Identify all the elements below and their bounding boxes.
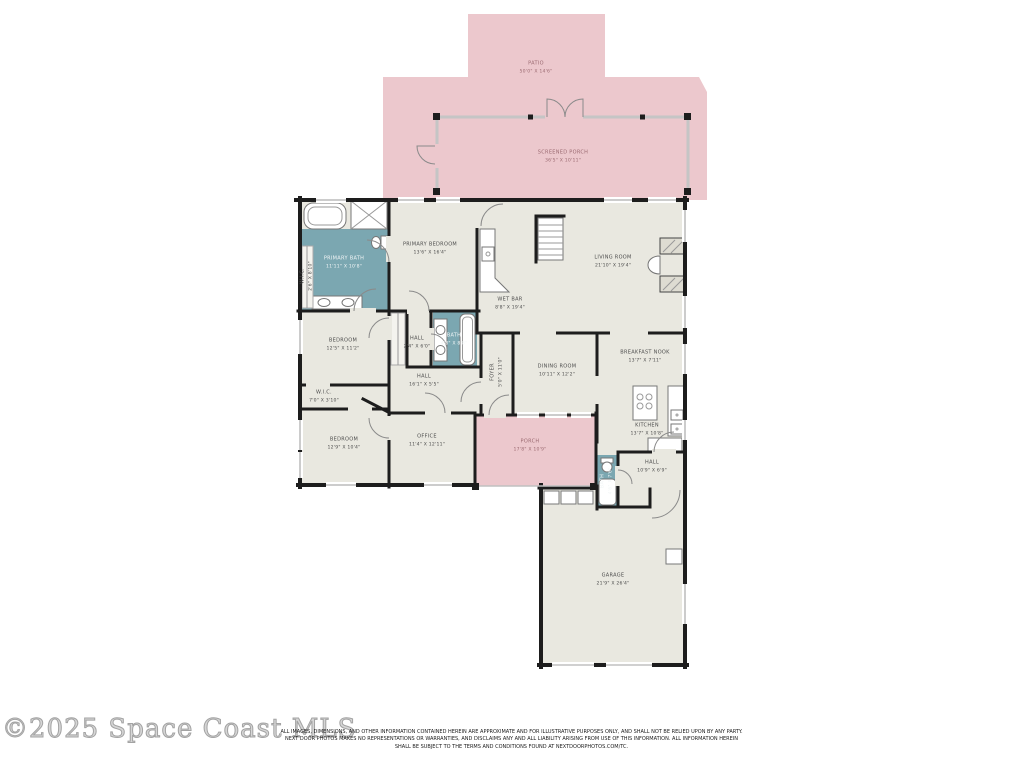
room-label-hall-main: HALL 16'1" X 5'5" [409, 374, 439, 389]
room-label-patio: PATIO 50'0" X 14'6" [520, 61, 553, 76]
room-label-garage: GARAGE 21'9" X 26'4" [597, 573, 630, 588]
room-name: BATH [441, 333, 468, 341]
room-name: FOYER [490, 357, 498, 387]
dishwasher [482, 247, 494, 261]
laundry-unit [561, 491, 576, 504]
floorplan-canvas: PATIO 50'0" X 14'6" SCREENED PORCH 36'5"… [0, 0, 1024, 768]
room-label-dining-room: DINING ROOM 10'11" X 12'2" [538, 364, 577, 379]
room-label-hall-small: HALL 2'4" X 6'0" [404, 336, 431, 351]
stairs [538, 218, 563, 260]
room-dims: 5'0" X 11'0" [497, 357, 504, 387]
room-dims: 8'8" X 19'4" [495, 304, 525, 311]
room-name: LIVING ROOM [594, 255, 631, 263]
room-dims: 2'6" X 8'10" [307, 261, 314, 291]
wall-oven [671, 410, 683, 420]
room-name: SCREENED PORCH [538, 150, 588, 158]
room-label-office: OFFICE 11'4" X 12'11" [409, 434, 445, 449]
room-name: PORCH [514, 439, 547, 447]
disclaimer-line-1: ALL IMAGES, DIMENSIONS, AND OTHER INFORM… [253, 729, 770, 736]
water-heater [666, 549, 682, 564]
room-label-primary-bath: PRIMARY BATH 11'11" X 10'8" [324, 256, 364, 271]
room-name: HALL [409, 374, 439, 382]
room-label-wic-primary: W.I.C. 2'6" X 8'10" [300, 261, 315, 291]
room-name: BREAKFAST NOOK [620, 350, 670, 358]
room-name: W.I.C. [300, 261, 308, 291]
room-name: BATH [600, 468, 608, 495]
room-dims: 2'4" X 6'0" [404, 343, 431, 350]
room-dims: 16'1" X 5'5" [409, 381, 439, 388]
room-label-foyer: FOYER 5'0" X 11'0" [490, 357, 505, 387]
room-dims: 12'5" X 11'2" [327, 345, 360, 352]
room-dims: 10'11" X 12'2" [538, 371, 577, 378]
disclaimer-line-3: SHALL BE SUBJECT TO THE TERMS AND CONDIT… [253, 744, 770, 751]
room-dims: 12'9" X 10'4" [328, 444, 361, 451]
room-label-screened-porch: SCREENED PORCH 36'5" X 10'11" [538, 150, 588, 165]
room-label-bedroom-front: BEDROOM 12'9" X 10'4" [328, 437, 361, 452]
room-name: GARAGE [597, 573, 630, 581]
disclaimer-line-2: NEXT DOOR PHOTOS MAKES NO REPRESENTATION… [253, 736, 770, 743]
room-dims: 10'9" X 6'9" [637, 467, 667, 474]
toilet [372, 237, 381, 249]
room-dims: 13'7" X 10'8" [631, 430, 664, 437]
room-dims: 7'0" X 3'10" [309, 397, 339, 404]
floorplan-drawing [0, 0, 1024, 768]
room-dims: 4'8" X 8'8" [441, 340, 468, 347]
room-name: HALL [637, 460, 667, 468]
room-name: PATIO [520, 61, 553, 69]
room-dims: 36'5" X 10'11" [538, 157, 588, 164]
room-label-bath-hall: BATH 4'8" X 8'8" [441, 333, 468, 348]
room-dims: 11'11" X 10'8" [324, 263, 364, 270]
disclaimer-text: ALL IMAGES, DIMENSIONS, AND OTHER INFORM… [253, 729, 770, 751]
room-dims: 13'6" X 16'4" [403, 249, 457, 256]
sink [342, 299, 354, 307]
room-name: OFFICE [409, 434, 445, 442]
room-dims: 17'8" X 10'9" [514, 446, 547, 453]
room-label-breakfast-nook: BREAKFAST NOOK 13'7" X 7'11" [620, 350, 670, 365]
room-name: DINING ROOM [538, 364, 577, 372]
room-dims: 4'6" X 7'6" [607, 468, 614, 495]
kitchen-island [633, 386, 657, 420]
laundry-unit [544, 491, 559, 504]
room-dims: 21'10" X 19'4" [594, 262, 631, 269]
room-label-bath-garage: BATH 4'6" X 7'6" [600, 468, 615, 495]
room-label-wic-hall: W.I.C. 7'0" X 3'10" [309, 390, 339, 405]
room-label-wet-bar: WET BAR 8'8" X 19'4" [495, 297, 525, 312]
room-name: BEDROOM [327, 338, 360, 346]
room-label-kitchen: KITCHEN 13'7" X 10'8" [631, 423, 664, 438]
room-label-primary-bedroom: PRIMARY BEDROOM 13'6" X 16'4" [403, 242, 457, 257]
room-dims: 13'7" X 7'11" [620, 357, 670, 364]
room-label-hall-garage: HALL 10'9" X 6'9" [637, 460, 667, 475]
room-name: BEDROOM [328, 437, 361, 445]
room-name: HALL [404, 336, 431, 344]
room-name: WET BAR [495, 297, 525, 305]
room-label-porch: PORCH 17'8" X 10'9" [514, 439, 547, 454]
room-name: W.I.C. [309, 390, 339, 398]
room-name: PRIMARY BEDROOM [403, 242, 457, 250]
laundry-unit [578, 491, 593, 504]
room-dims: 11'4" X 12'11" [409, 441, 445, 448]
room-dims: 50'0" X 14'6" [520, 68, 553, 75]
patio-shape [383, 14, 707, 200]
room-label-bedroom-mid: BEDROOM 12'5" X 11'2" [327, 338, 360, 353]
room-label-living-room: LIVING ROOM 21'10" X 19'4" [594, 255, 631, 270]
room-name: PRIMARY BATH [324, 256, 364, 264]
room-dims: 21'9" X 26'4" [597, 580, 630, 587]
room-name: KITCHEN [631, 423, 664, 431]
sink [318, 299, 330, 307]
